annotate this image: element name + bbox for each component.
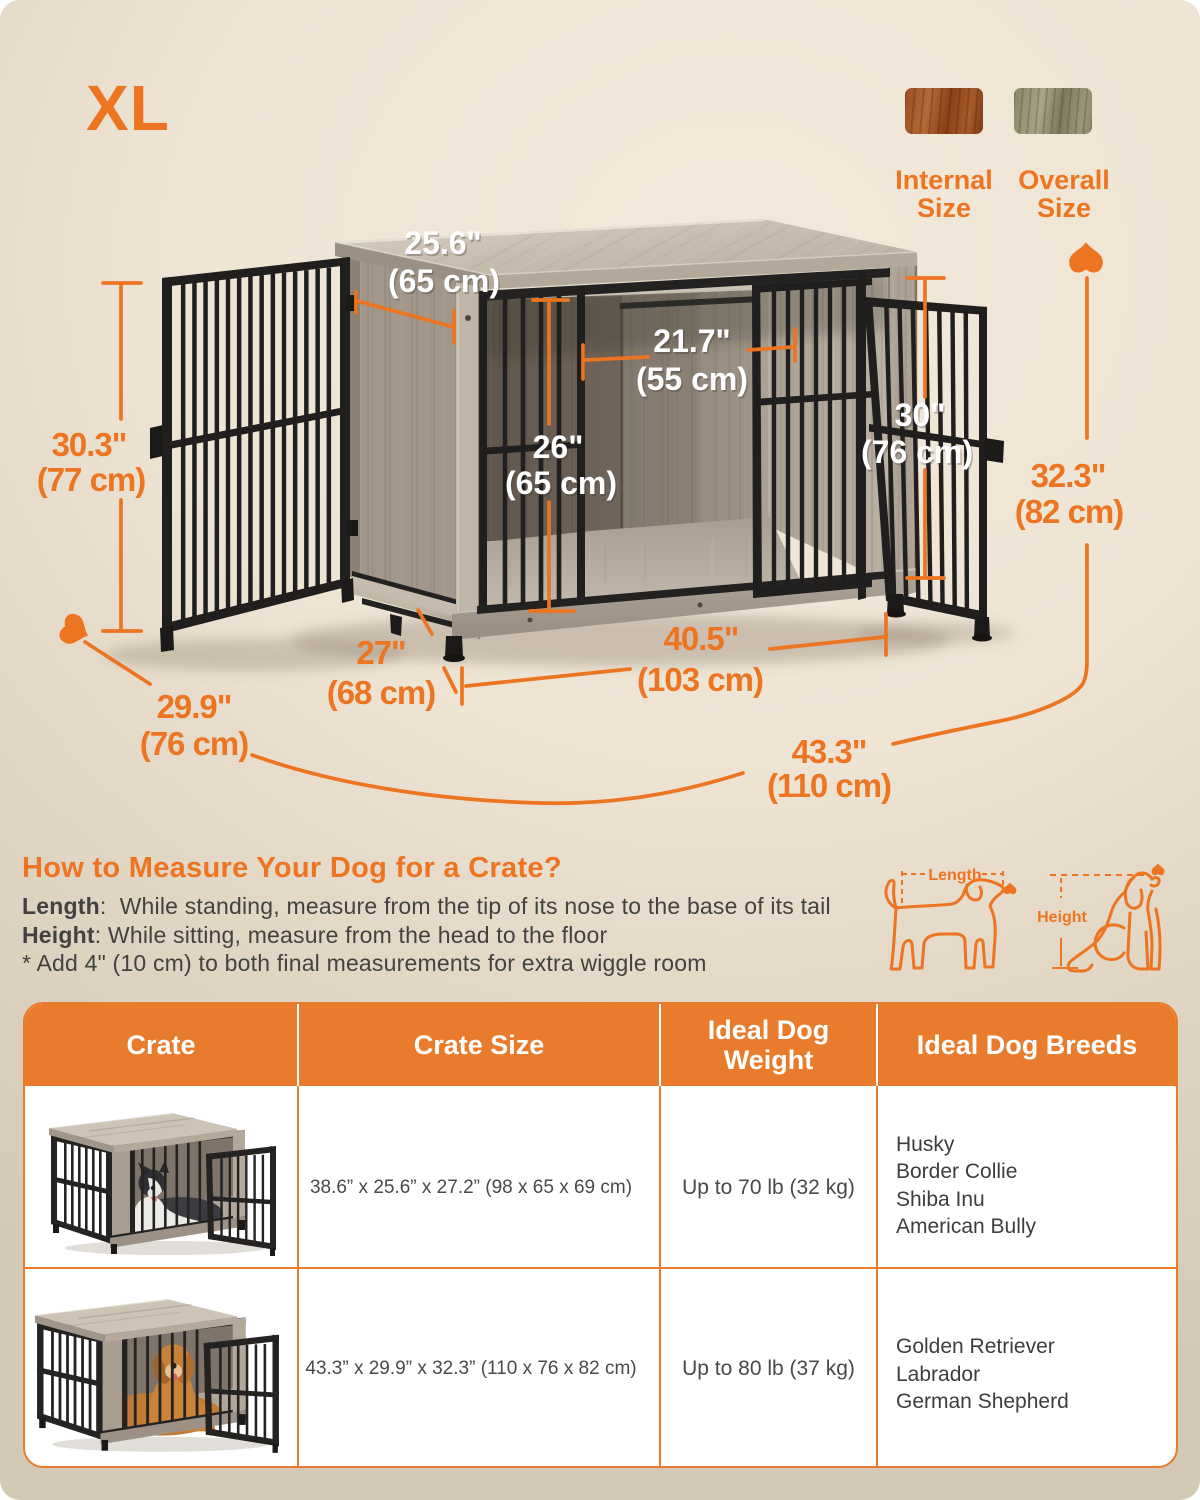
svg-text:21.7": 21.7" xyxy=(653,323,730,359)
svg-text:(55 cm): (55 cm) xyxy=(636,361,748,397)
svg-text:(77 cm): (77 cm) xyxy=(37,461,146,498)
svg-text:29.9": 29.9" xyxy=(157,688,232,725)
svg-text:(68 cm): (68 cm) xyxy=(327,674,436,711)
svg-text:40.5": 40.5" xyxy=(664,620,739,657)
svg-text:30.3": 30.3" xyxy=(52,426,127,463)
svg-text:Length: Length xyxy=(928,867,981,884)
svg-text:(65 cm): (65 cm) xyxy=(505,465,617,501)
svg-text:26": 26" xyxy=(533,429,584,465)
svg-text:(82 cm): (82 cm) xyxy=(1015,493,1124,530)
svg-text:25.6": 25.6" xyxy=(404,225,481,261)
svg-text:Height: Height xyxy=(1037,909,1087,926)
svg-text:32.3": 32.3" xyxy=(1031,457,1106,494)
svg-text:(76 cm): (76 cm) xyxy=(140,725,249,762)
svg-text:(76 cm): (76 cm) xyxy=(861,434,973,470)
svg-text:43.3": 43.3" xyxy=(792,733,867,770)
svg-text:(103 cm): (103 cm) xyxy=(637,661,763,698)
svg-text:(65 cm): (65 cm) xyxy=(388,263,500,299)
svg-text:27": 27" xyxy=(356,634,405,671)
svg-text:30": 30" xyxy=(895,397,946,433)
svg-text:(110 cm): (110 cm) xyxy=(767,767,891,804)
